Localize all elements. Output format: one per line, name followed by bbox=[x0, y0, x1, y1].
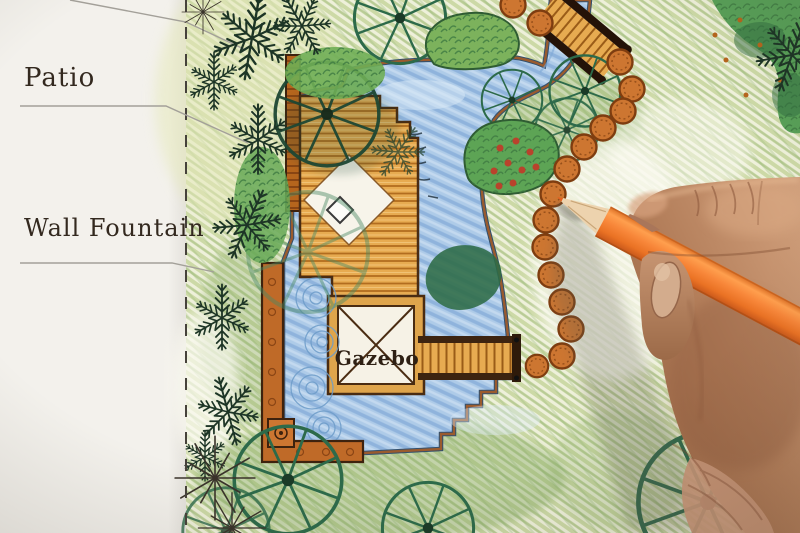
scene: Gazebo bbox=[0, 0, 800, 533]
garden-plan-photo: Gazebo bbox=[0, 0, 800, 533]
photo-vignette bbox=[0, 0, 800, 533]
